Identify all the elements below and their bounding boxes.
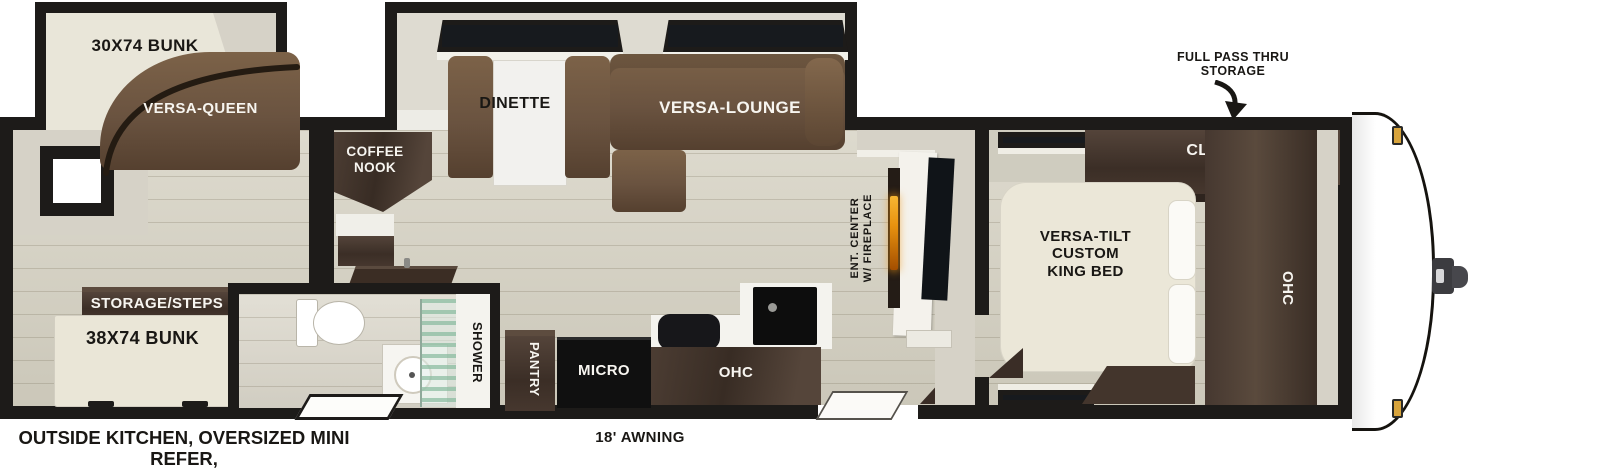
shower-label: SHOWER — [462, 306, 484, 398]
ent-center-pedestal — [906, 330, 952, 348]
clearance-light-bottom — [1392, 399, 1403, 418]
king-bed-pillow-bottom — [1168, 284, 1196, 364]
bedroom-ohc-cabinet — [1205, 130, 1317, 405]
versa-lounge-chaise — [612, 150, 686, 212]
coffee-nook-lower-cabinet — [338, 236, 394, 266]
bedroom-ohc-label: OHC — [1272, 258, 1296, 318]
coffee-nook-label: COFFEE NOOK — [334, 144, 416, 175]
microwave-label: MICRO — [557, 362, 651, 379]
down-arrow-icon — [1203, 80, 1255, 120]
bedroom-window-bottom — [998, 390, 1094, 405]
fireplace-flame — [890, 196, 898, 270]
cooktop-knob — [768, 303, 777, 312]
hitch-latch — [1436, 269, 1444, 283]
dinette-label: DINETTE — [455, 95, 575, 113]
coffee-nook-counter-face — [336, 214, 394, 236]
top-wall-right-segment — [845, 117, 1352, 130]
bathroom-door — [294, 394, 403, 420]
dinette-bench-right — [565, 56, 610, 178]
counter-faucet — [404, 258, 410, 268]
kitchen-stool — [658, 314, 720, 350]
versa-queen-label: VERSA-QUEEN — [118, 100, 283, 117]
bunk38-foot-left — [88, 401, 114, 407]
king-bed-label: VERSA-TILT CUSTOM KING BED — [1008, 228, 1163, 280]
bunk38-label: 38X74 BUNK — [60, 328, 225, 349]
king-bed-pillow-top — [1168, 200, 1196, 280]
bedroom-window-top-sill — [998, 148, 1094, 154]
bedroom-window-top — [998, 132, 1094, 148]
storage-steps-label: STORAGE/STEPS — [82, 292, 232, 315]
bedroom-wall-lower — [975, 377, 989, 405]
awning-label: 18' AWNING — [555, 429, 725, 446]
shower-glass-door — [420, 299, 456, 407]
versa-lounge-label: VERSA-LOUNGE — [640, 98, 820, 118]
outside-kitchen-caption: OUTSIDE KITCHEN, OVERSIZED MINI REFER, S… — [0, 427, 368, 473]
full-pass-thru-annotation: FULL PASS THRU STORAGE — [1148, 50, 1318, 79]
bedroom-front-ledge — [1317, 130, 1338, 405]
entry-door-leaf — [816, 391, 909, 420]
bath-sink-drain — [409, 372, 415, 378]
pantry-label: PANTRY — [519, 336, 541, 402]
hitch-coupler — [1452, 266, 1468, 288]
bunk38-foot-right — [182, 401, 208, 407]
dinette-bench-left — [448, 56, 493, 178]
front-cap — [1352, 112, 1435, 431]
cooktop — [753, 287, 817, 345]
top-wall-left-segment — [322, 117, 392, 130]
kitchen-ohc-label: OHC — [651, 364, 821, 381]
dinette-table — [493, 60, 567, 186]
rear-room-partition-wall — [322, 130, 334, 288]
bedroom-wall-upper — [975, 130, 989, 315]
rv-floorplan: 30X74 BUNK VERSA-QUEEN STORAGE/STEPS 38X… — [0, 0, 1600, 473]
toilet-bowl — [313, 301, 365, 345]
bottom-wall-right-segment — [918, 405, 1352, 419]
slideout-window-left — [437, 20, 623, 52]
ent-center-label: ENT. CENTER W/ FIREPLACE — [849, 178, 883, 298]
clearance-light-top — [1392, 126, 1403, 145]
slideout-window-right — [663, 20, 848, 52]
